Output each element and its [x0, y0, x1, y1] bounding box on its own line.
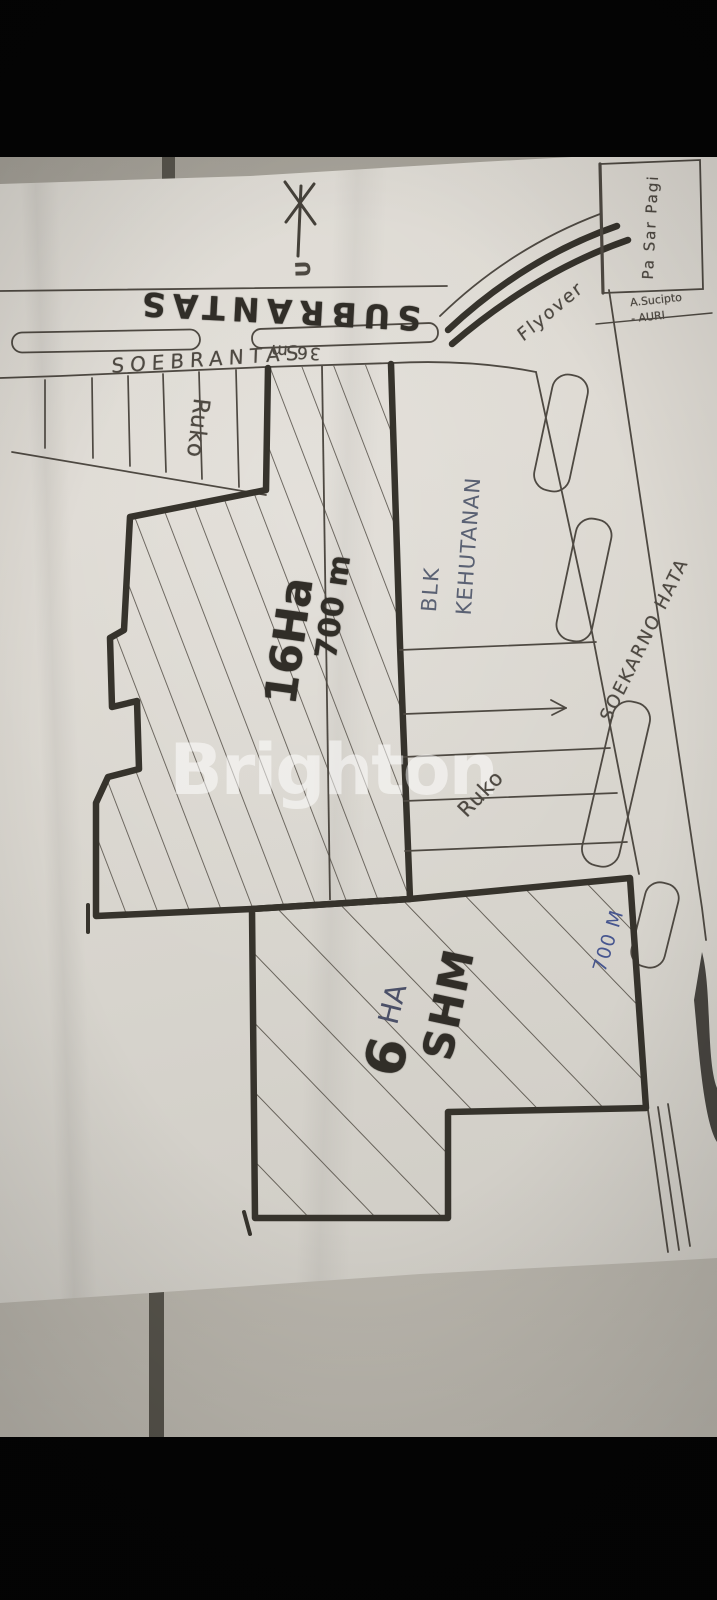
compass-north-letter: U [293, 261, 314, 278]
shophouse-strip-top [12, 370, 266, 495]
forestry-block-line1: BLK [419, 565, 443, 612]
shophouses-top-label: Ruko [182, 397, 212, 459]
photographed-land-sketch: Brighton SUBRANTAS SOEBRANTAS 36 m Flyov… [0, 0, 717, 1600]
access-arrow [404, 700, 566, 715]
photo-black-band-bottom [0, 1437, 717, 1600]
plot-16ha-hatch [96, 364, 410, 916]
compass-arrow [285, 182, 315, 256]
shadow-blob [694, 952, 717, 1142]
plot-16ha-outline [88, 364, 410, 932]
tile-grout-bottom [149, 1289, 164, 1437]
brand-watermark: Brighton [169, 735, 496, 805]
corner-note-line2: - AURI [631, 310, 666, 324]
road-width-note: 36 m [269, 341, 322, 362]
photo-black-band-top [0, 0, 717, 157]
